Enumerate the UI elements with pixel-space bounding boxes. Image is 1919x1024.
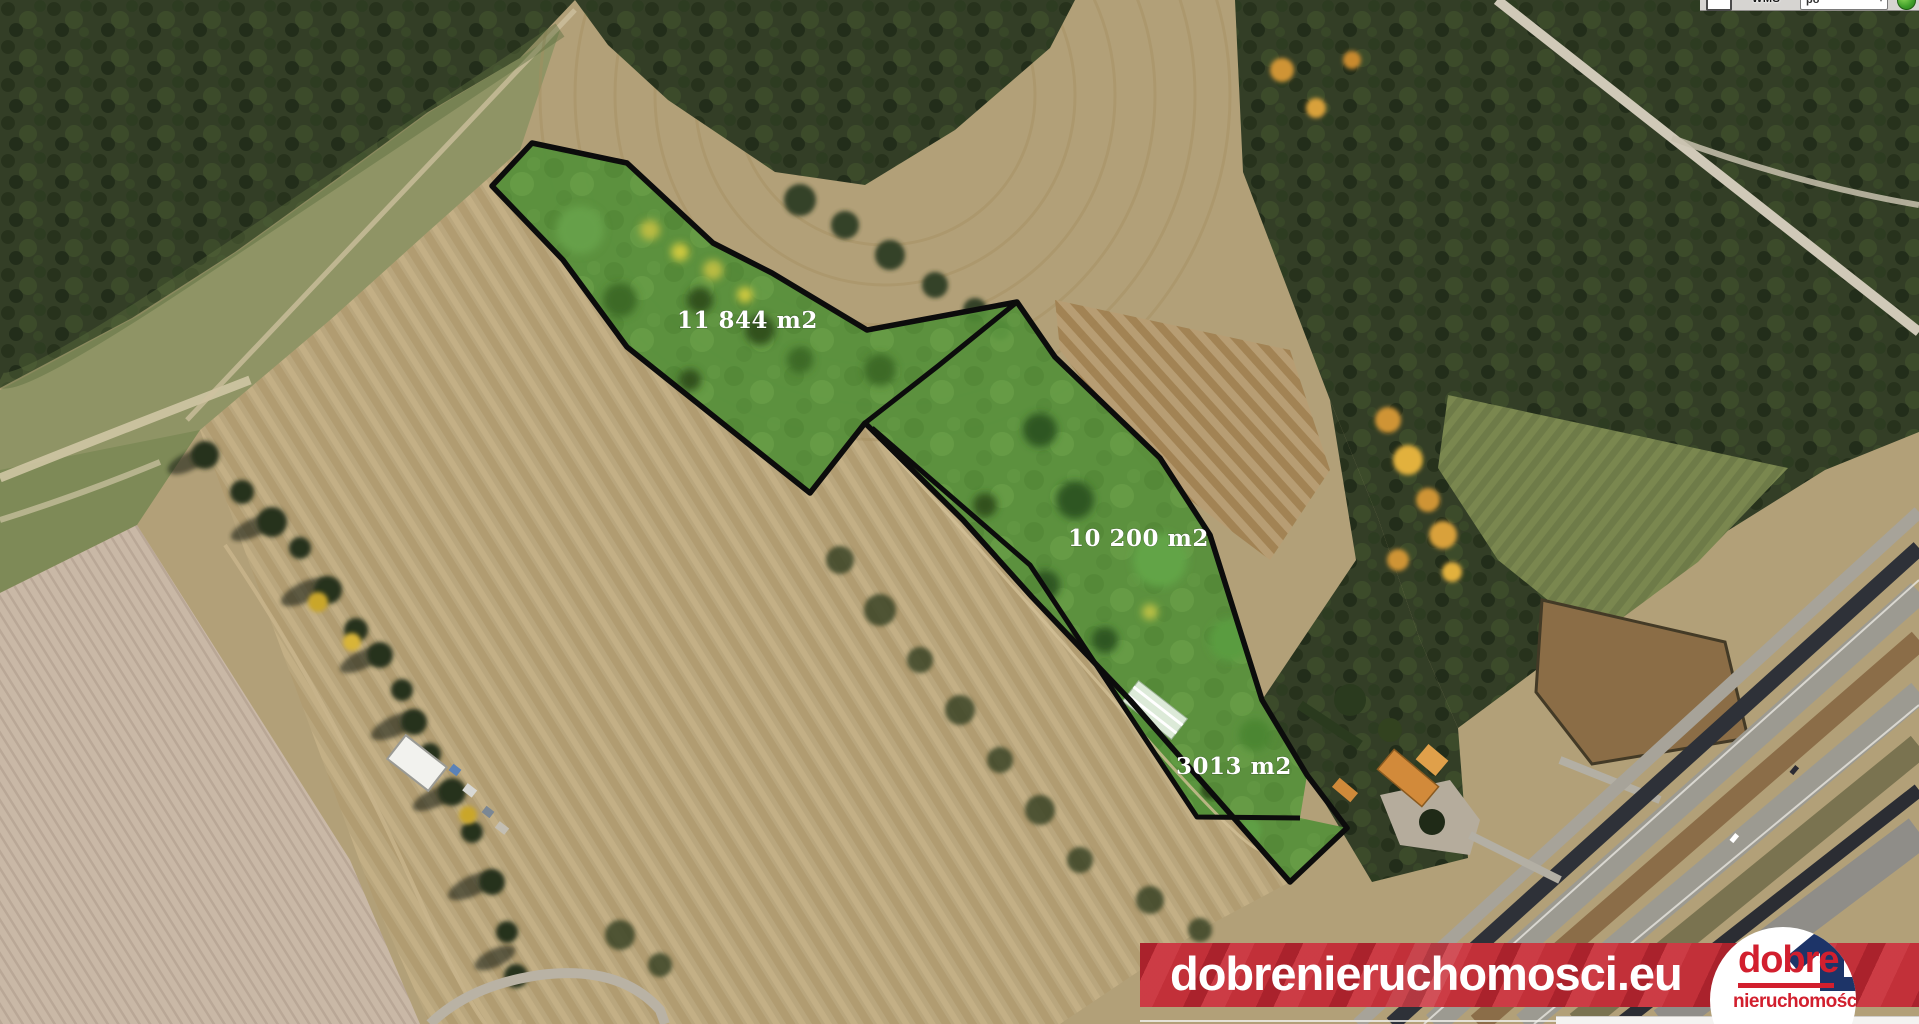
watermark-site-text: dobrenieruchomosci.eu	[1170, 943, 1682, 1005]
map-viewport[interactable]: 11 844 m2 10 200 m2 3013 m2 WMS po ▾ dob…	[0, 0, 1919, 1024]
bottom-edge-line	[1140, 1020, 1560, 1022]
parcel-1-area-label: 11 844 m2	[677, 307, 818, 334]
layer-dropdown-value: po	[1806, 0, 1819, 6]
toolbar-button[interactable]	[1706, 0, 1732, 11]
chevron-down-icon: ▾	[1879, 0, 1883, 4]
agency-logo: dobre nieruchomości	[1710, 927, 1856, 1024]
wms-label: WMS	[1752, 0, 1780, 5]
aerial-map[interactable]: 11 844 m2 10 200 m2 3013 m2	[0, 0, 1919, 1024]
green-action-button[interactable]	[1897, 0, 1916, 10]
parcel-3-area-label: 3013 m2	[1176, 753, 1292, 780]
map-toolbar: WMS po ▾	[1700, 0, 1919, 11]
parcel-2-area-label: 10 200 m2	[1068, 525, 1209, 552]
logo-underline	[1738, 983, 1834, 988]
logo-word-nieruchomosci: nieruchomości	[1733, 991, 1856, 1013]
layer-dropdown[interactable]: po ▾	[1800, 0, 1888, 10]
logo-word-dobre: dobre	[1738, 939, 1839, 982]
garden-bush	[1419, 809, 1445, 835]
